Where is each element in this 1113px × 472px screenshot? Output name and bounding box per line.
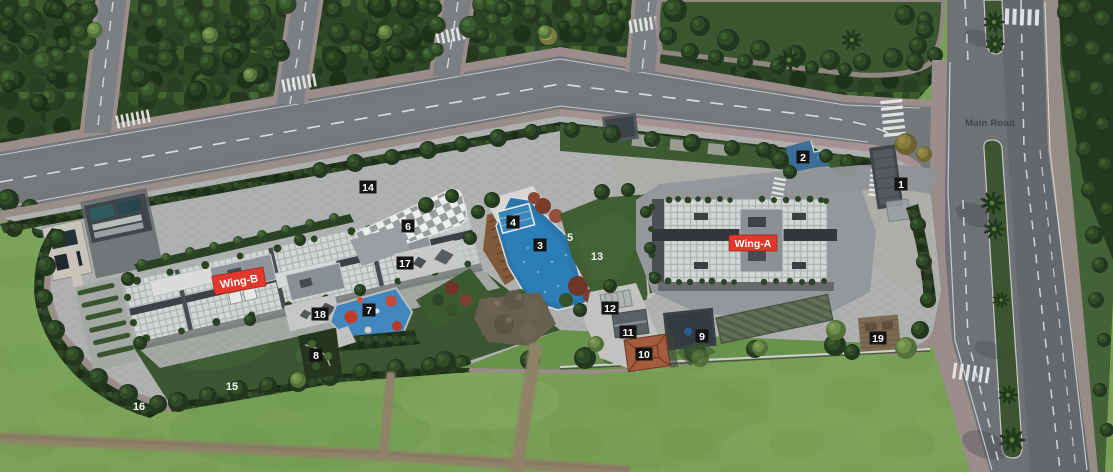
svg-text:4: 4 (510, 217, 516, 229)
svg-text:17: 17 (399, 258, 411, 270)
svg-text:Wing-A: Wing-A (735, 238, 772, 250)
svg-text:6: 6 (405, 221, 411, 233)
svg-text:10: 10 (638, 349, 650, 361)
svg-text:2: 2 (800, 152, 806, 164)
svg-text:8: 8 (313, 350, 319, 362)
svg-text:11: 11 (622, 327, 633, 339)
svg-text:9: 9 (699, 331, 705, 343)
svg-text:14: 14 (362, 182, 374, 194)
svg-text:3: 3 (537, 240, 543, 252)
svg-text:18: 18 (314, 309, 326, 321)
svg-text:15: 15 (226, 381, 238, 393)
svg-text:12: 12 (604, 303, 616, 315)
svg-text:1: 1 (898, 179, 904, 191)
svg-text:Main Road: Main Road (965, 118, 1015, 129)
svg-text:19: 19 (872, 333, 884, 345)
svg-text:13: 13 (591, 251, 603, 263)
svg-text:16: 16 (133, 401, 145, 413)
svg-text:7: 7 (366, 305, 372, 317)
svg-text:5: 5 (567, 232, 573, 244)
